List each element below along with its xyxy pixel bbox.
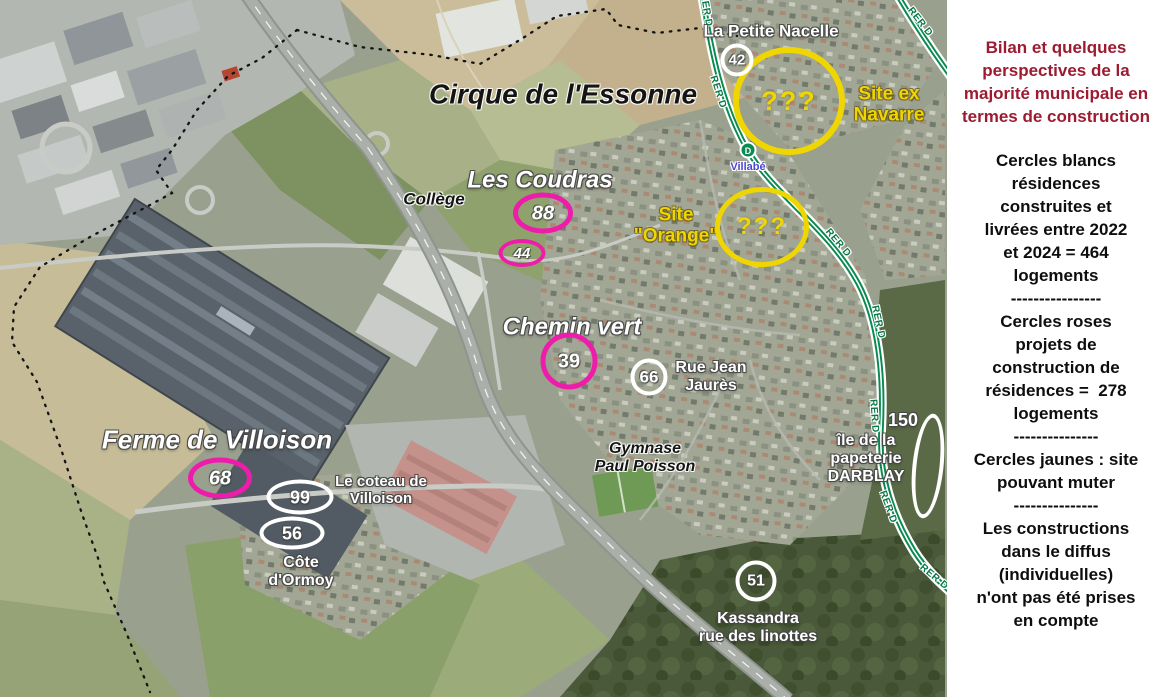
yellow-circle-site-orange: ??? xyxy=(715,187,809,267)
pink-circle-44: 44 xyxy=(499,239,546,267)
pink-circle-88: 88 xyxy=(513,193,573,234)
place-label-kassandra-linottes: Kassandra rue des linottes xyxy=(699,610,817,646)
legend-separator: --------------- xyxy=(1014,494,1099,517)
rer-station-icon: D xyxy=(740,142,757,159)
place-label-petite-nacelle: La Petite Nacelle xyxy=(703,21,838,40)
legend-title: Bilan et quelques perspectives de la maj… xyxy=(962,36,1150,128)
place-label-gymnase-paul-poisson: Gymnase Paul Poisson xyxy=(595,440,695,476)
white-circle-99: 99 xyxy=(267,480,334,515)
legend-separator: ---------------- xyxy=(1011,287,1102,310)
annotated-map-slide: D RER D RER D RER D RER D RER D RER D RE… xyxy=(0,0,1165,697)
area-label-cirque-essonne: Cirque de l'Essonne xyxy=(429,78,697,109)
value-label-papeterie-150: 150 xyxy=(888,410,918,430)
legend-yellow-circles: Cercles jaunes : site pouvant muter xyxy=(974,448,1138,494)
area-label-ferme-villoison: Ferme de Villoison xyxy=(102,425,332,454)
station-name-label: Villabé xyxy=(730,161,765,173)
site-label-orange: Site "Orange" xyxy=(634,205,719,248)
place-label-coteau-villoison: Le coteau de Villoison xyxy=(335,474,427,508)
place-label-papeterie-darblay: île de la papeterie DARBLAY xyxy=(828,432,905,486)
pink-circle-68: 68 xyxy=(188,458,252,499)
place-label-rue-jean-jaures: Rue Jean Jaurès xyxy=(675,359,746,395)
legend-panel: Bilan et quelques perspectives de la maj… xyxy=(947,0,1165,697)
legend-separator: --------------- xyxy=(1014,425,1099,448)
white-circle-42: 42 xyxy=(721,44,754,77)
pink-circle-39: 39 xyxy=(541,333,598,390)
svg-text:D: D xyxy=(745,146,752,156)
rer-line-label: RER D xyxy=(867,399,880,433)
place-label-college: Collège xyxy=(403,189,464,208)
site-label-ex-navarre: Site ex Navarre xyxy=(854,84,925,127)
legend-pink-circles: Cercles roses projets de construction de… xyxy=(985,310,1126,425)
place-label-cote-ormoy: Côte d'Ormoy xyxy=(268,554,333,590)
area-label-les-coudras: Les Coudras xyxy=(467,168,612,195)
white-circle-51: 51 xyxy=(736,561,777,602)
legend-white-circles: Cercles blancs résidences construites et… xyxy=(985,149,1128,287)
legend-note-diffus: Les constructions dans le diffus (indivi… xyxy=(977,517,1136,632)
white-circle-66: 66 xyxy=(631,359,668,396)
white-circle-56: 56 xyxy=(260,517,325,550)
